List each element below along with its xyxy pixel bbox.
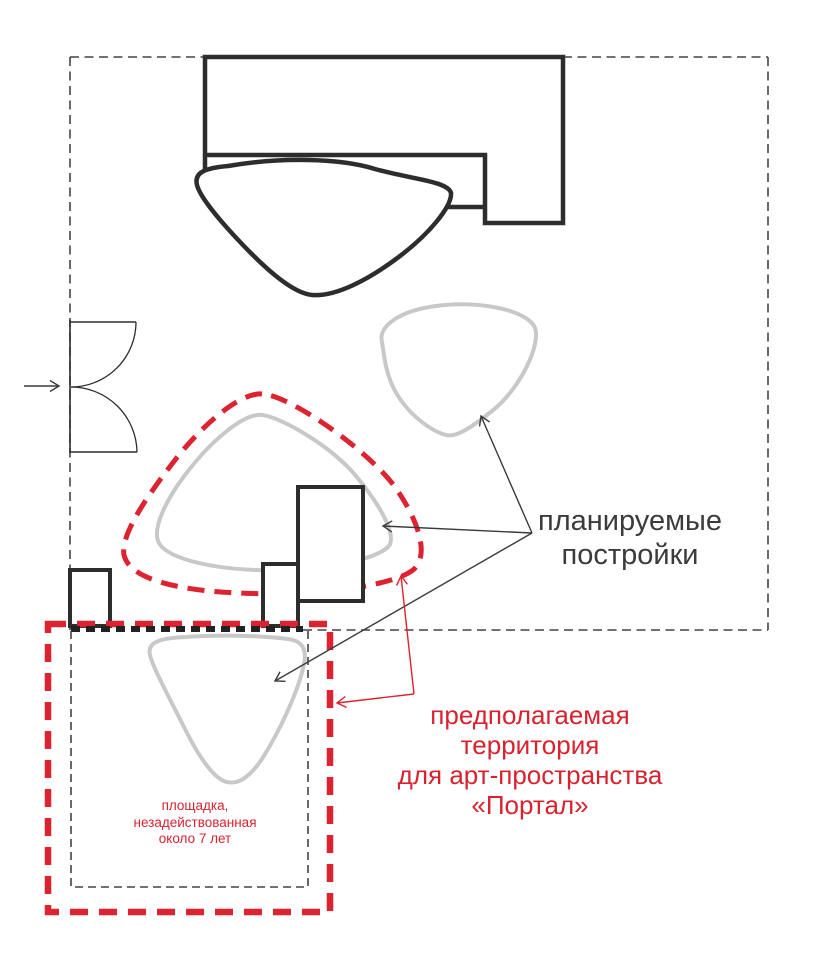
planned-building-rect-mid	[263, 564, 298, 626]
label-proposed-territory: предполагаемая территория для арт-простр…	[398, 700, 663, 820]
label-unused-site-note: площадка, незадействованная около 7 лет	[133, 798, 256, 848]
arrow-to-rect-building	[383, 526, 532, 533]
arrow-to-proposed-triangle	[401, 576, 414, 694]
arrow-to-top-pavilion	[481, 416, 532, 533]
entrance-door-icon	[70, 320, 137, 453]
planned-pavilion-top	[381, 304, 536, 435]
label-planned-buildings: планируемые постройки	[538, 504, 722, 572]
planned-building-rect-tall	[298, 487, 363, 601]
door-swing-bottom	[71, 387, 137, 452]
door-swing-top	[71, 322, 136, 387]
site-plan-diagram: планируемые постройки предполагаемая тер…	[0, 0, 839, 964]
existing-pavilion	[196, 160, 451, 295]
planned-building-rect-left	[70, 570, 110, 626]
planned-pavilion-bottom	[150, 636, 305, 783]
